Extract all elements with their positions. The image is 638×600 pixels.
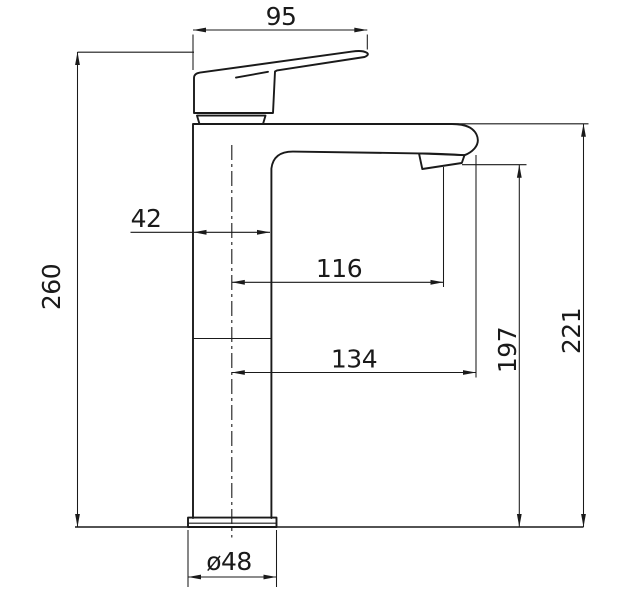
dim-221-label: 221 bbox=[557, 308, 586, 354]
handle-lever bbox=[194, 51, 368, 113]
dimension-116: 116 bbox=[232, 167, 444, 287]
dim-197-arrow-top bbox=[517, 165, 522, 178]
handle-crease-line bbox=[236, 72, 268, 78]
dim-95-arrow-left bbox=[193, 28, 206, 33]
dim-48-arrow-right bbox=[264, 575, 277, 580]
dim-48-arrow-left bbox=[188, 575, 201, 580]
dimension-221: 221 bbox=[453, 124, 589, 527]
dim-116-arrow-left bbox=[232, 280, 245, 285]
dim-116-arrow-right bbox=[431, 280, 444, 285]
dimension-diameter-48: ø48 bbox=[188, 530, 277, 587]
dim-134-label: 134 bbox=[331, 345, 377, 374]
dim-134-arrow-right bbox=[463, 370, 476, 375]
dimension-197: 197 bbox=[462, 165, 527, 527]
dim-260-arrow-top bbox=[75, 52, 80, 65]
dim-48-label: ø48 bbox=[206, 547, 252, 576]
dim-260-label: 260 bbox=[37, 264, 66, 310]
dim-42-arrow-left bbox=[194, 230, 207, 235]
dim-221-arrow-bottom bbox=[581, 514, 586, 527]
dim-134-arrow-left bbox=[232, 370, 245, 375]
dim-221-arrow-top bbox=[581, 124, 586, 137]
dim-116-label: 116 bbox=[316, 254, 362, 283]
dim-260-arrow-bottom bbox=[75, 514, 80, 527]
dim-42-arrow-right bbox=[257, 230, 270, 235]
dim-197-label: 197 bbox=[493, 327, 522, 373]
dim-42-label: 42 bbox=[131, 204, 162, 233]
spout-underside bbox=[271, 152, 464, 518]
dim-95-label: 95 bbox=[266, 2, 297, 31]
dimension-42: 42 bbox=[131, 204, 271, 235]
faucet-dimension-drawing: 95 260 42 116 134 197 bbox=[0, 0, 638, 600]
dim-95-arrow-right bbox=[354, 28, 367, 33]
dimension-260: 260 bbox=[37, 52, 194, 527]
aerator-outlet bbox=[419, 153, 465, 169]
dim-197-arrow-bottom bbox=[517, 514, 522, 527]
technical-drawing-canvas: 95 260 42 116 134 197 bbox=[0, 0, 638, 600]
spout-body bbox=[193, 124, 478, 518]
handle-collar bbox=[197, 116, 266, 124]
